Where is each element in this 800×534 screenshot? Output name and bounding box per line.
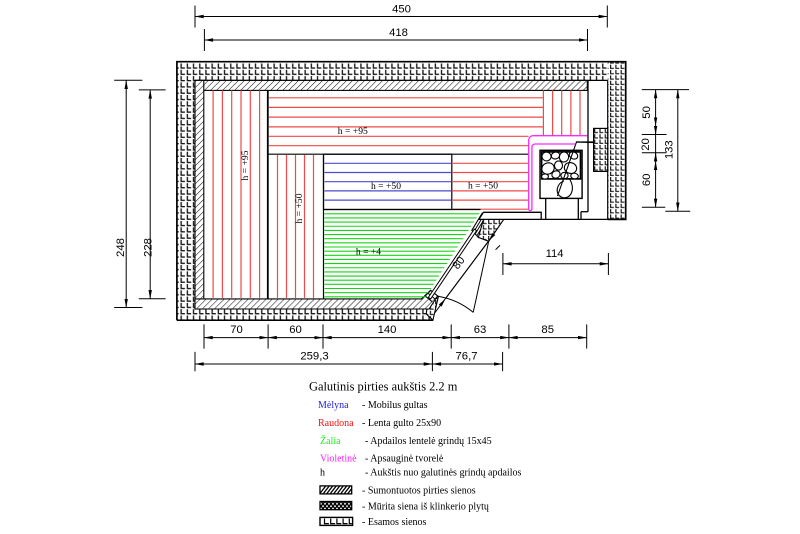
svg-text:Violetinė: Violetinė (320, 454, 357, 465)
svg-text:h = +95: h = +95 (338, 126, 368, 137)
svg-text:h = +50: h = +50 (468, 181, 498, 192)
svg-text:133: 133 (663, 140, 675, 159)
svg-text:- Apdailos lentelė grindų 15x4: - Apdailos lentelė grindų 15x45 (365, 436, 492, 447)
svg-text:228: 228 (143, 238, 155, 257)
svg-text:60: 60 (641, 174, 653, 187)
svg-text:60: 60 (289, 324, 302, 336)
svg-text:70: 70 (230, 324, 243, 336)
svg-text:- Esamos sienos: - Esamos sienos (362, 517, 427, 528)
svg-text:Raudona: Raudona (318, 418, 354, 429)
svg-text:248: 248 (115, 238, 127, 257)
svg-text:h: h (320, 468, 325, 479)
svg-text:Žalia: Žalia (320, 435, 341, 447)
svg-text:Mėlyna: Mėlyna (318, 400, 349, 411)
svg-text:h = +95: h = +95 (240, 150, 251, 180)
svg-text:h = +50: h = +50 (371, 181, 401, 192)
svg-text:76,7: 76,7 (456, 350, 478, 362)
svg-text:418: 418 (389, 27, 408, 39)
svg-text:63: 63 (474, 324, 487, 336)
svg-text:114: 114 (546, 248, 564, 260)
svg-text:- Sumontuotos pirties sienos: - Sumontuotos pirties sienos (362, 486, 476, 497)
svg-text:- Mūrita siena iš klinkerio pl: - Mūrita siena iš klinkerio plytų (362, 501, 489, 512)
svg-text:85: 85 (541, 324, 554, 336)
svg-text:- Apsauginė tvorelė: - Apsauginė tvorelė (365, 454, 444, 465)
svg-text:80: 80 (451, 255, 468, 272)
svg-text:140: 140 (378, 324, 397, 336)
svg-text:50: 50 (641, 106, 653, 119)
svg-text:- Mobilus gultas: - Mobilus gultas (362, 400, 428, 411)
svg-text:- Aukštis nuo galutinės grindų: - Aukštis nuo galutinės grindų apdailos (365, 468, 521, 479)
svg-text:450: 450 (392, 4, 411, 16)
svg-text:h = +4: h = +4 (356, 247, 381, 258)
svg-text:259,3: 259,3 (300, 350, 328, 362)
svg-text:h = +50: h = +50 (294, 193, 305, 223)
svg-text:- Lenta gulto 25x90: - Lenta gulto 25x90 (362, 418, 441, 429)
svg-text:Galutinis pirties aukštis 2.2: Galutinis pirties aukštis 2.2 m (309, 379, 458, 393)
svg-text:20: 20 (640, 138, 652, 151)
